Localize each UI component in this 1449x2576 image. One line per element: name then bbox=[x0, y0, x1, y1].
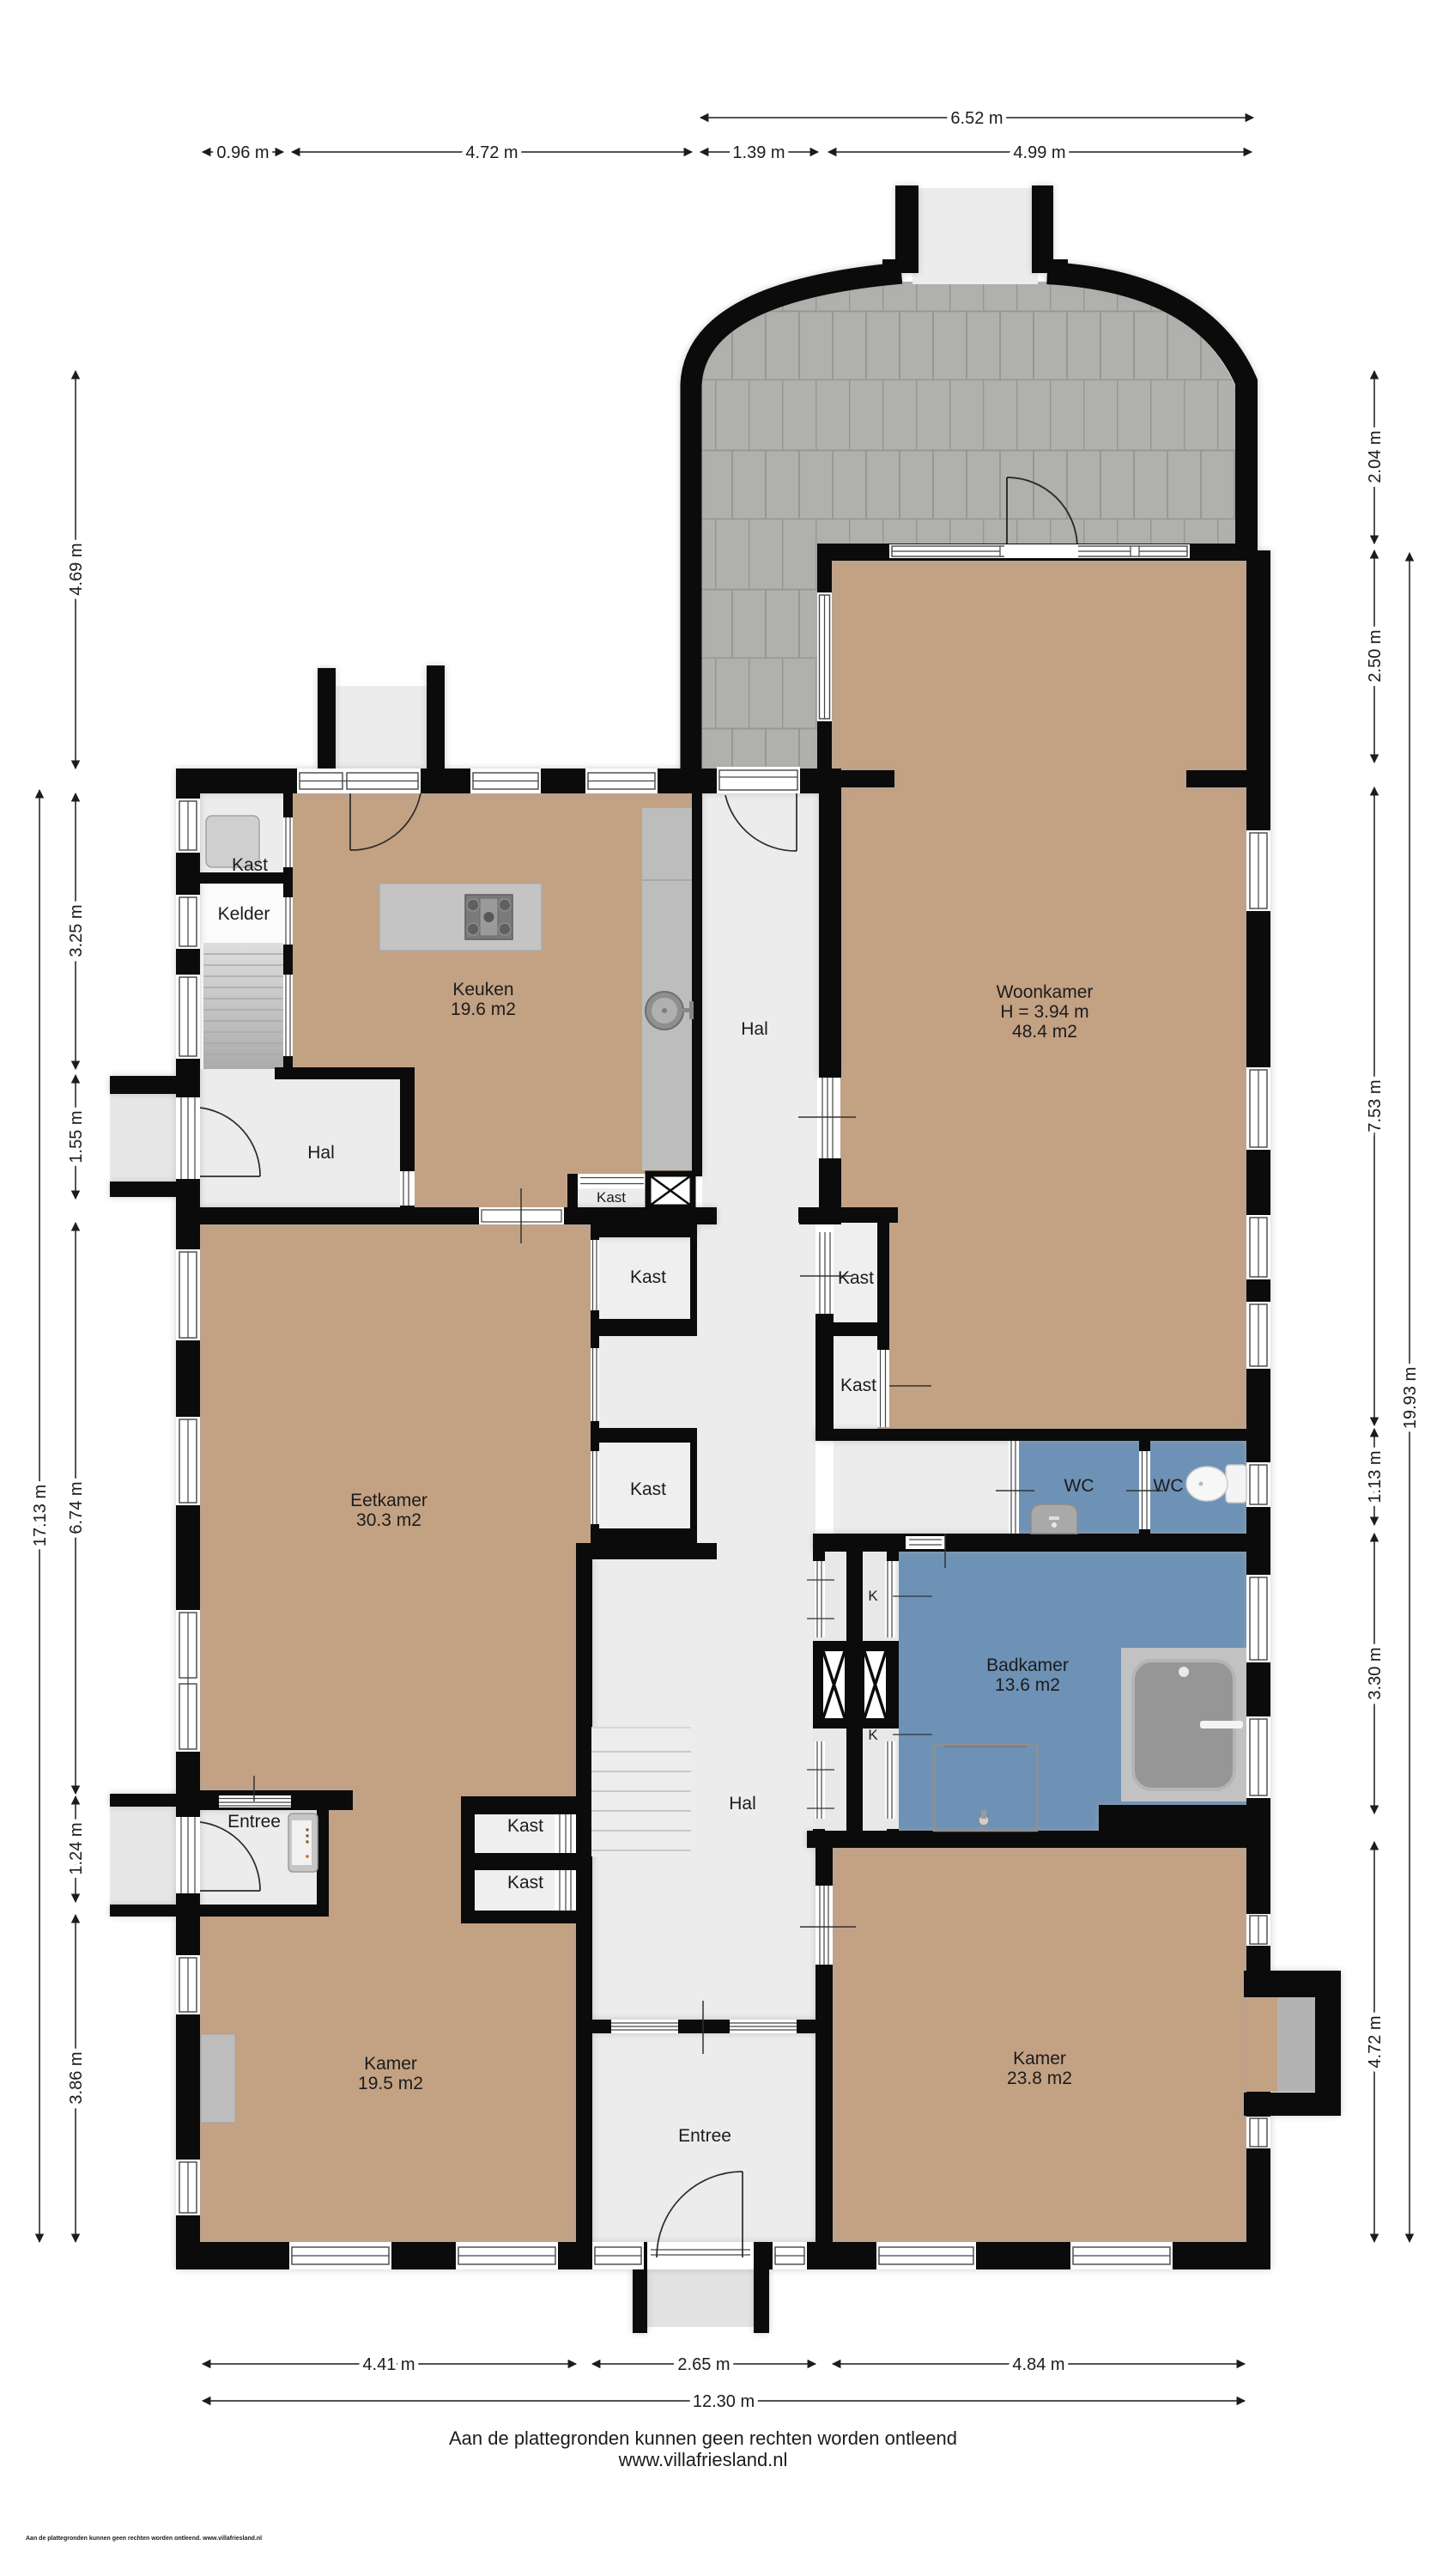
svg-text:48.4 m2: 48.4 m2 bbox=[1012, 1022, 1077, 1042]
svg-text:Kast: Kast bbox=[838, 1268, 874, 1288]
svg-text:Hal: Hal bbox=[741, 1019, 768, 1039]
svg-text:4.72 m: 4.72 m bbox=[465, 143, 518, 162]
svg-text:3.25 m: 3.25 m bbox=[67, 904, 86, 957]
svg-text:Kast: Kast bbox=[630, 1479, 666, 1499]
svg-text:Kast: Kast bbox=[507, 1873, 543, 1893]
svg-text:1.24 m: 1.24 m bbox=[67, 1822, 86, 1874]
svg-text:Kast: Kast bbox=[840, 1376, 876, 1395]
svg-text:13.6 m2: 13.6 m2 bbox=[995, 1675, 1060, 1695]
svg-text:Hal: Hal bbox=[307, 1143, 335, 1163]
svg-text:19.5 m2: 19.5 m2 bbox=[358, 2074, 423, 2093]
svg-text:Kamer: Kamer bbox=[1013, 2049, 1066, 2069]
svg-text:19.6 m2: 19.6 m2 bbox=[451, 999, 516, 1019]
svg-text:K: K bbox=[868, 1588, 878, 1604]
svg-text:4.84 m: 4.84 m bbox=[1012, 2355, 1064, 2374]
svg-text:Kast: Kast bbox=[507, 1816, 543, 1836]
svg-text:Woonkamer: Woonkamer bbox=[997, 982, 1094, 1002]
svg-text:3.30 m: 3.30 m bbox=[1366, 1647, 1385, 1699]
svg-text:23.8 m2: 23.8 m2 bbox=[1007, 2069, 1072, 2088]
svg-text:Kast: Kast bbox=[597, 1189, 626, 1206]
svg-text:WC: WC bbox=[1064, 1476, 1094, 1496]
svg-text:www.villafriesland.nl: www.villafriesland.nl bbox=[618, 2449, 788, 2470]
svg-text:4.69 m: 4.69 m bbox=[67, 543, 86, 595]
svg-text:Kelder: Kelder bbox=[218, 904, 270, 924]
svg-text:Entree: Entree bbox=[227, 1812, 281, 1832]
svg-text:6.52 m: 6.52 m bbox=[950, 109, 1003, 128]
svg-text:Badkamer: Badkamer bbox=[986, 1656, 1069, 1675]
svg-text:2.04 m: 2.04 m bbox=[1366, 430, 1385, 483]
svg-text:WC: WC bbox=[1154, 1476, 1184, 1496]
svg-text:0.96 m: 0.96 m bbox=[216, 143, 269, 162]
svg-text:19.93 m: 19.93 m bbox=[1401, 1367, 1420, 1429]
svg-text:Eetkamer: Eetkamer bbox=[350, 1491, 427, 1510]
svg-text:6.74 m: 6.74 m bbox=[67, 1481, 86, 1534]
svg-text:K: K bbox=[868, 1727, 878, 1743]
svg-text:4.99 m: 4.99 m bbox=[1013, 143, 1065, 162]
svg-text:1.39 m: 1.39 m bbox=[732, 143, 785, 162]
svg-text:2.50 m: 2.50 m bbox=[1366, 629, 1385, 682]
svg-text:Aan de plattegronden kunnen ge: Aan de plattegronden kunnen geen rechten… bbox=[26, 2536, 262, 2542]
svg-text:2.65 m: 2.65 m bbox=[677, 2355, 730, 2374]
svg-text:30.3 m2: 30.3 m2 bbox=[356, 1510, 421, 1530]
svg-text:H = 3.94 m: H = 3.94 m bbox=[1000, 1002, 1088, 1022]
svg-text:1.55 m: 1.55 m bbox=[67, 1110, 86, 1163]
svg-text:4.72 m: 4.72 m bbox=[1366, 2015, 1385, 2068]
svg-text:Kamer: Kamer bbox=[364, 2054, 417, 2074]
svg-text:Kast: Kast bbox=[232, 855, 268, 875]
svg-text:12.30 m: 12.30 m bbox=[693, 2392, 755, 2411]
svg-text:Keuken: Keuken bbox=[452, 980, 513, 999]
svg-text:17.13 m: 17.13 m bbox=[31, 1485, 50, 1546]
svg-text:4.41 m: 4.41 m bbox=[362, 2355, 415, 2374]
svg-text:Hal: Hal bbox=[729, 1794, 756, 1814]
svg-text:Aan de plattegronden kunnen ge: Aan de plattegronden kunnen geen rechten… bbox=[449, 2427, 957, 2449]
svg-text:1.13 m: 1.13 m bbox=[1366, 1450, 1385, 1503]
svg-text:7.53 m: 7.53 m bbox=[1366, 1079, 1385, 1132]
svg-text:Kast: Kast bbox=[630, 1267, 666, 1287]
svg-text:Entree: Entree bbox=[678, 2126, 731, 2146]
svg-text:3.86 m: 3.86 m bbox=[67, 2051, 86, 2104]
